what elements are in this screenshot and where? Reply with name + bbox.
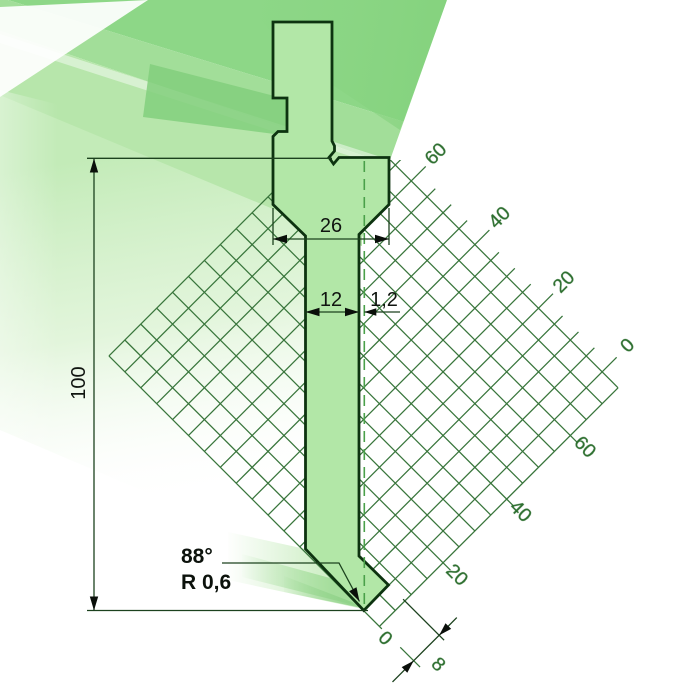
svg-text:88°: 88° [181, 545, 213, 568]
svg-text:26: 26 [320, 215, 342, 237]
svg-text:12: 12 [320, 289, 342, 311]
svg-text:1,2: 1,2 [370, 289, 398, 311]
svg-text:R 0,6: R 0,6 [181, 571, 231, 594]
svg-text:100: 100 [68, 366, 90, 399]
